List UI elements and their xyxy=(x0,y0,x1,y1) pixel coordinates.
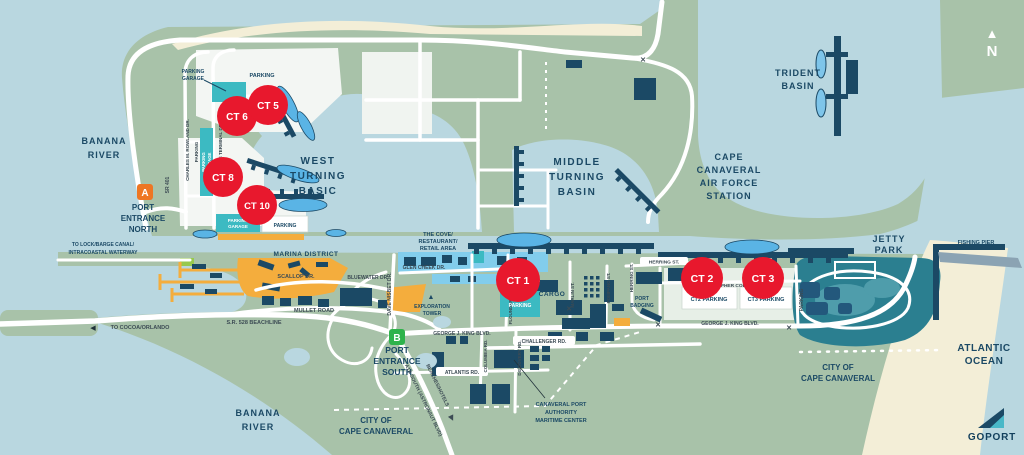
columbia-rd-label: COLUMBIA RD. xyxy=(483,339,488,372)
banana-river-south-label: RIVER xyxy=(242,422,275,432)
middle-basin-label: MIDDLE xyxy=(553,157,600,168)
port-badging-label: PORT xyxy=(635,296,649,302)
north-arrow: ▲ N xyxy=(986,26,999,60)
terminal-marker-ct10[interactable]: CT 10 xyxy=(237,185,277,225)
port-entrance-south-marker[interactable]: B xyxy=(389,329,405,345)
dave-nisbet-label: DAVE NISBET DR. xyxy=(387,272,393,316)
ct10-orange-strip xyxy=(218,234,304,240)
gate-icon: ✕ xyxy=(640,57,646,64)
north-arrow-icon: ▲ xyxy=(986,26,999,41)
george-king-west-label: GEORGE J. KING BLVD. xyxy=(433,331,491,337)
gate-icon: ✕ xyxy=(786,325,792,332)
ct10-garage-label: GARAGE xyxy=(228,224,248,229)
port-entrance-north-label: NORTH xyxy=(129,225,158,234)
air-force-station-label: CANAVERAL xyxy=(697,165,762,175)
west-basin-label: BASIC xyxy=(299,186,338,197)
ct1-label: CT 1 xyxy=(507,275,530,287)
middle-basin-label: BASIN xyxy=(558,187,597,198)
port-entrance-south-label: PORT xyxy=(385,345,409,355)
trident-basin-label: TRIDENT xyxy=(775,68,821,78)
maritime-center-label: MARITIME CENTER xyxy=(535,418,586,424)
exploration-tower-icon: ▲ xyxy=(428,294,435,301)
west-basin-label: TURNING xyxy=(290,171,346,182)
trident-basin-label: BASIN xyxy=(781,81,814,91)
marina-district-label: MARINA DISTRICT xyxy=(273,251,338,258)
lock-barge-label: INTRACOASTAL WATERWAY xyxy=(69,250,139,256)
middle-basin-label: TURNING xyxy=(549,172,605,183)
terminal-marker-ct3[interactable]: CT 3 xyxy=(742,257,784,299)
port-badging-building xyxy=(612,304,624,311)
port-entrance-south-label: ENTRANCE xyxy=(373,356,421,366)
atlantic-ocean-label: OCEAN xyxy=(965,356,1004,367)
port-entrance-north-label: ENTRANCE xyxy=(121,214,166,223)
banana-river-label: BANANA xyxy=(82,136,127,146)
north-letter: N xyxy=(987,43,998,60)
west-basin-label: WEST xyxy=(301,156,336,167)
the-cove-label: RETAIL AREA xyxy=(420,246,456,252)
sr401-label: SR 401 xyxy=(165,176,171,193)
george-king-east-label: GEORGE J. KING BLVD. xyxy=(701,321,759,327)
challenger-rd-label: CHALLENGER RD. xyxy=(522,339,567,345)
terminal-marker-ct2[interactable]: CT 2 xyxy=(681,257,723,299)
discovery-rd-label: DISCOVERY RD. xyxy=(517,340,522,375)
city-cape-canaveral-west-label: CAPE CANAVERAL xyxy=(339,427,413,436)
to-cocoa-arrow-icon: ◀ xyxy=(90,325,96,332)
charles-rowland-label: CHARLES M. ROWLAND DR. xyxy=(185,119,190,181)
port-canaveral-map: ✕ ✕ ✕ ✕ ◀ ▶ ▲ BANANA RIVER BANANA RIVER … xyxy=(0,0,1024,455)
atlantic-ocean-label: ATLANTIC xyxy=(957,343,1010,354)
city-cape-canaveral-west-label: CITY OF xyxy=(360,416,392,425)
city-cape-canaveral-east-label: CITY OF xyxy=(822,363,854,372)
trident-pier xyxy=(834,36,841,136)
air-station-building xyxy=(634,78,656,100)
banana-river-south-label: BANANA xyxy=(236,408,281,418)
mullet-road-label: MULLET ROAD xyxy=(294,308,334,314)
exploration-tower-label: TOWER xyxy=(423,311,442,317)
banana-river-label: RIVER xyxy=(88,150,121,160)
air-force-station-label: AIR FORCE xyxy=(700,178,759,188)
lock-barge-label: TO LOCK/BARGE CANAL/ xyxy=(72,242,135,248)
glen-cheek-dr-label: GLEN CHEEK DR. xyxy=(403,265,446,271)
to-cocoa-label: TO COCOA/ORLANDO xyxy=(111,325,171,331)
terminal-marker-ct1[interactable]: CT 1 xyxy=(496,258,540,302)
scallop-dr-label: SCALLOP DR. xyxy=(277,274,315,280)
port-entrance-north-marker[interactable]: A xyxy=(137,184,153,200)
map-canvas: ✕ ✕ ✕ ✕ ◀ ▶ ▲ BANANA RIVER BANANA RIVER … xyxy=(0,0,1024,455)
ct3-side-parking-label: PARKING xyxy=(799,289,805,312)
marker-a-letter: A xyxy=(141,188,148,199)
exploration-tower-label: EXPLORATION xyxy=(414,304,450,310)
the-cove-label: RESTAURANT/ xyxy=(418,239,457,245)
ct5-label: CT 5 xyxy=(257,101,279,112)
ct10-parking-label: PARKING xyxy=(274,223,297,229)
terminal-marker-ct5[interactable]: CT 5 xyxy=(248,85,288,125)
maritime-center-label: AUTHORITY xyxy=(545,410,577,416)
north-garage-label: PARKING xyxy=(182,69,205,75)
port-entrance-north-label: PORT xyxy=(132,203,154,212)
maritime-center-label: CANAVERAL PORT xyxy=(536,402,587,408)
ct10-label: CT 10 xyxy=(244,201,270,212)
fishing-pier-label: FISHING PIER xyxy=(958,240,995,246)
jetty-park-label: JETTY xyxy=(872,234,905,244)
goport-logo-text: GOPORT xyxy=(968,432,1016,443)
ct3-label: CT 3 xyxy=(752,273,775,285)
ct1-parking-label: PARKING xyxy=(509,303,532,309)
bluewater-dr-label: BLUEWATER DR. xyxy=(347,275,389,281)
north-parking-label: PARKING xyxy=(250,73,275,79)
air-force-station-label: STATION xyxy=(706,191,751,201)
herring-st-label: HERRING ST. xyxy=(649,260,679,266)
gate-icon: ✕ xyxy=(655,322,661,329)
herring-st-vertical-label: HERRING ST. xyxy=(629,264,634,293)
cargo-label: CARGO xyxy=(539,291,566,298)
north-garage-label: GARAGE xyxy=(182,76,205,82)
terminal-marker-ct8[interactable]: CT 8 xyxy=(203,157,243,197)
marker-b-letter: B xyxy=(393,333,400,344)
marlin-st-label: MARLIN ST. xyxy=(570,282,575,307)
parking-strip-label: PARKING xyxy=(194,141,199,162)
ct2-label: CT 2 xyxy=(691,273,714,285)
air-force-station-label: CAPE xyxy=(714,152,743,162)
atlantis-rd-label: ATLANTIS RD. xyxy=(445,370,480,376)
the-cove-label: THE COVE/ xyxy=(423,232,453,238)
jetty-park-label: PARK xyxy=(875,245,904,255)
city-cape-canaveral-east-label: CAPE CANAVERAL xyxy=(801,374,875,383)
ct8-label: CT 8 xyxy=(212,173,234,184)
port-badging-label: BADGING xyxy=(630,303,654,309)
pompano-st-label: POMPANO ST. xyxy=(606,273,611,304)
sr528-label: S.R. 528 BEACHLINE xyxy=(226,320,281,326)
badging-orange-building xyxy=(614,318,630,326)
ct6-label: CT 6 xyxy=(226,112,248,123)
